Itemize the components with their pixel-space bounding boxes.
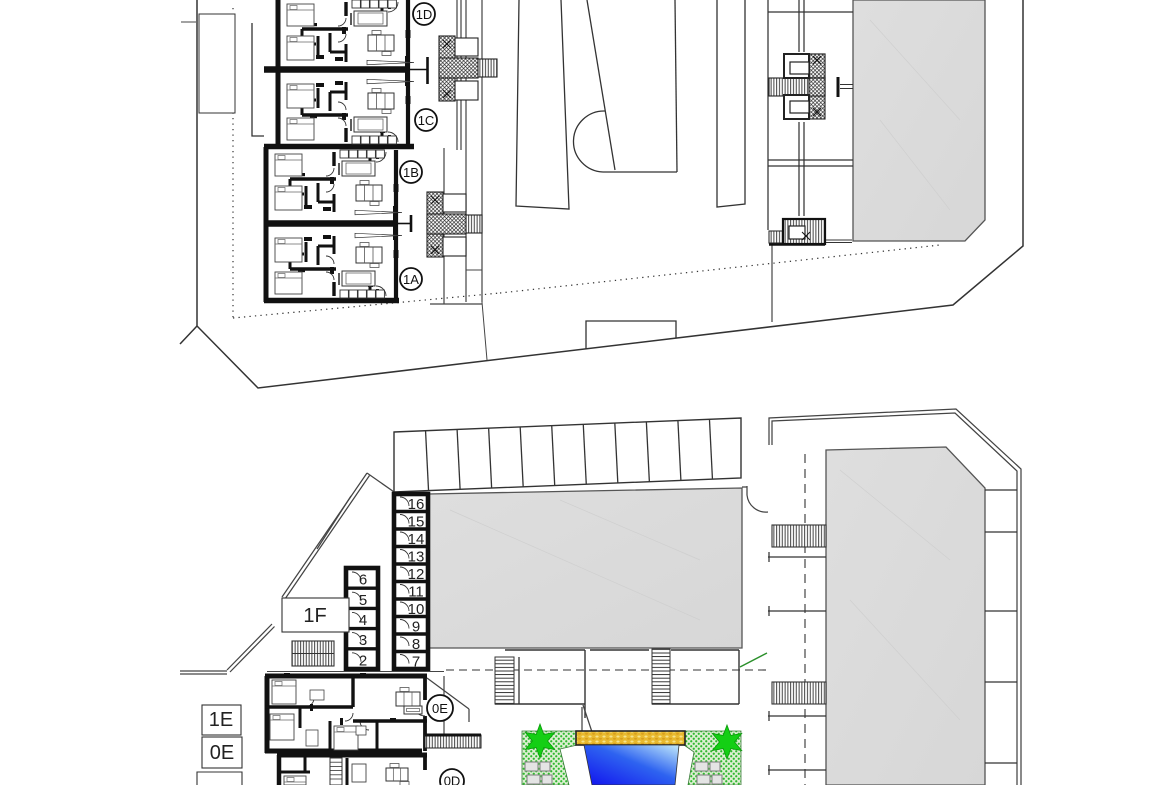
svg-text:6: 6 xyxy=(359,572,367,589)
svg-text:2: 2 xyxy=(359,652,367,669)
svg-text:14: 14 xyxy=(408,531,425,548)
svg-text:0E: 0E xyxy=(432,701,448,716)
svg-text:5: 5 xyxy=(359,592,367,609)
svg-text:1B: 1B xyxy=(403,165,419,180)
svg-text:10: 10 xyxy=(408,601,425,618)
svg-text:1F: 1F xyxy=(303,605,326,627)
svg-text:7: 7 xyxy=(412,654,420,671)
svg-text:11: 11 xyxy=(408,584,424,601)
svg-text:0E: 0E xyxy=(210,742,234,764)
svg-text:1A: 1A xyxy=(403,272,419,287)
svg-text:1D: 1D xyxy=(416,7,433,22)
svg-text:16: 16 xyxy=(408,496,425,513)
svg-text:13: 13 xyxy=(408,549,425,566)
svg-text:4: 4 xyxy=(359,612,367,629)
svg-text:12: 12 xyxy=(408,566,425,583)
svg-text:3: 3 xyxy=(359,632,367,649)
svg-text:15: 15 xyxy=(408,514,425,531)
svg-text:8: 8 xyxy=(412,636,420,653)
svg-text:9: 9 xyxy=(412,619,420,636)
svg-text:0D: 0D xyxy=(444,774,461,785)
svg-text:1E: 1E xyxy=(209,709,233,731)
svg-text:1C: 1C xyxy=(418,113,435,128)
